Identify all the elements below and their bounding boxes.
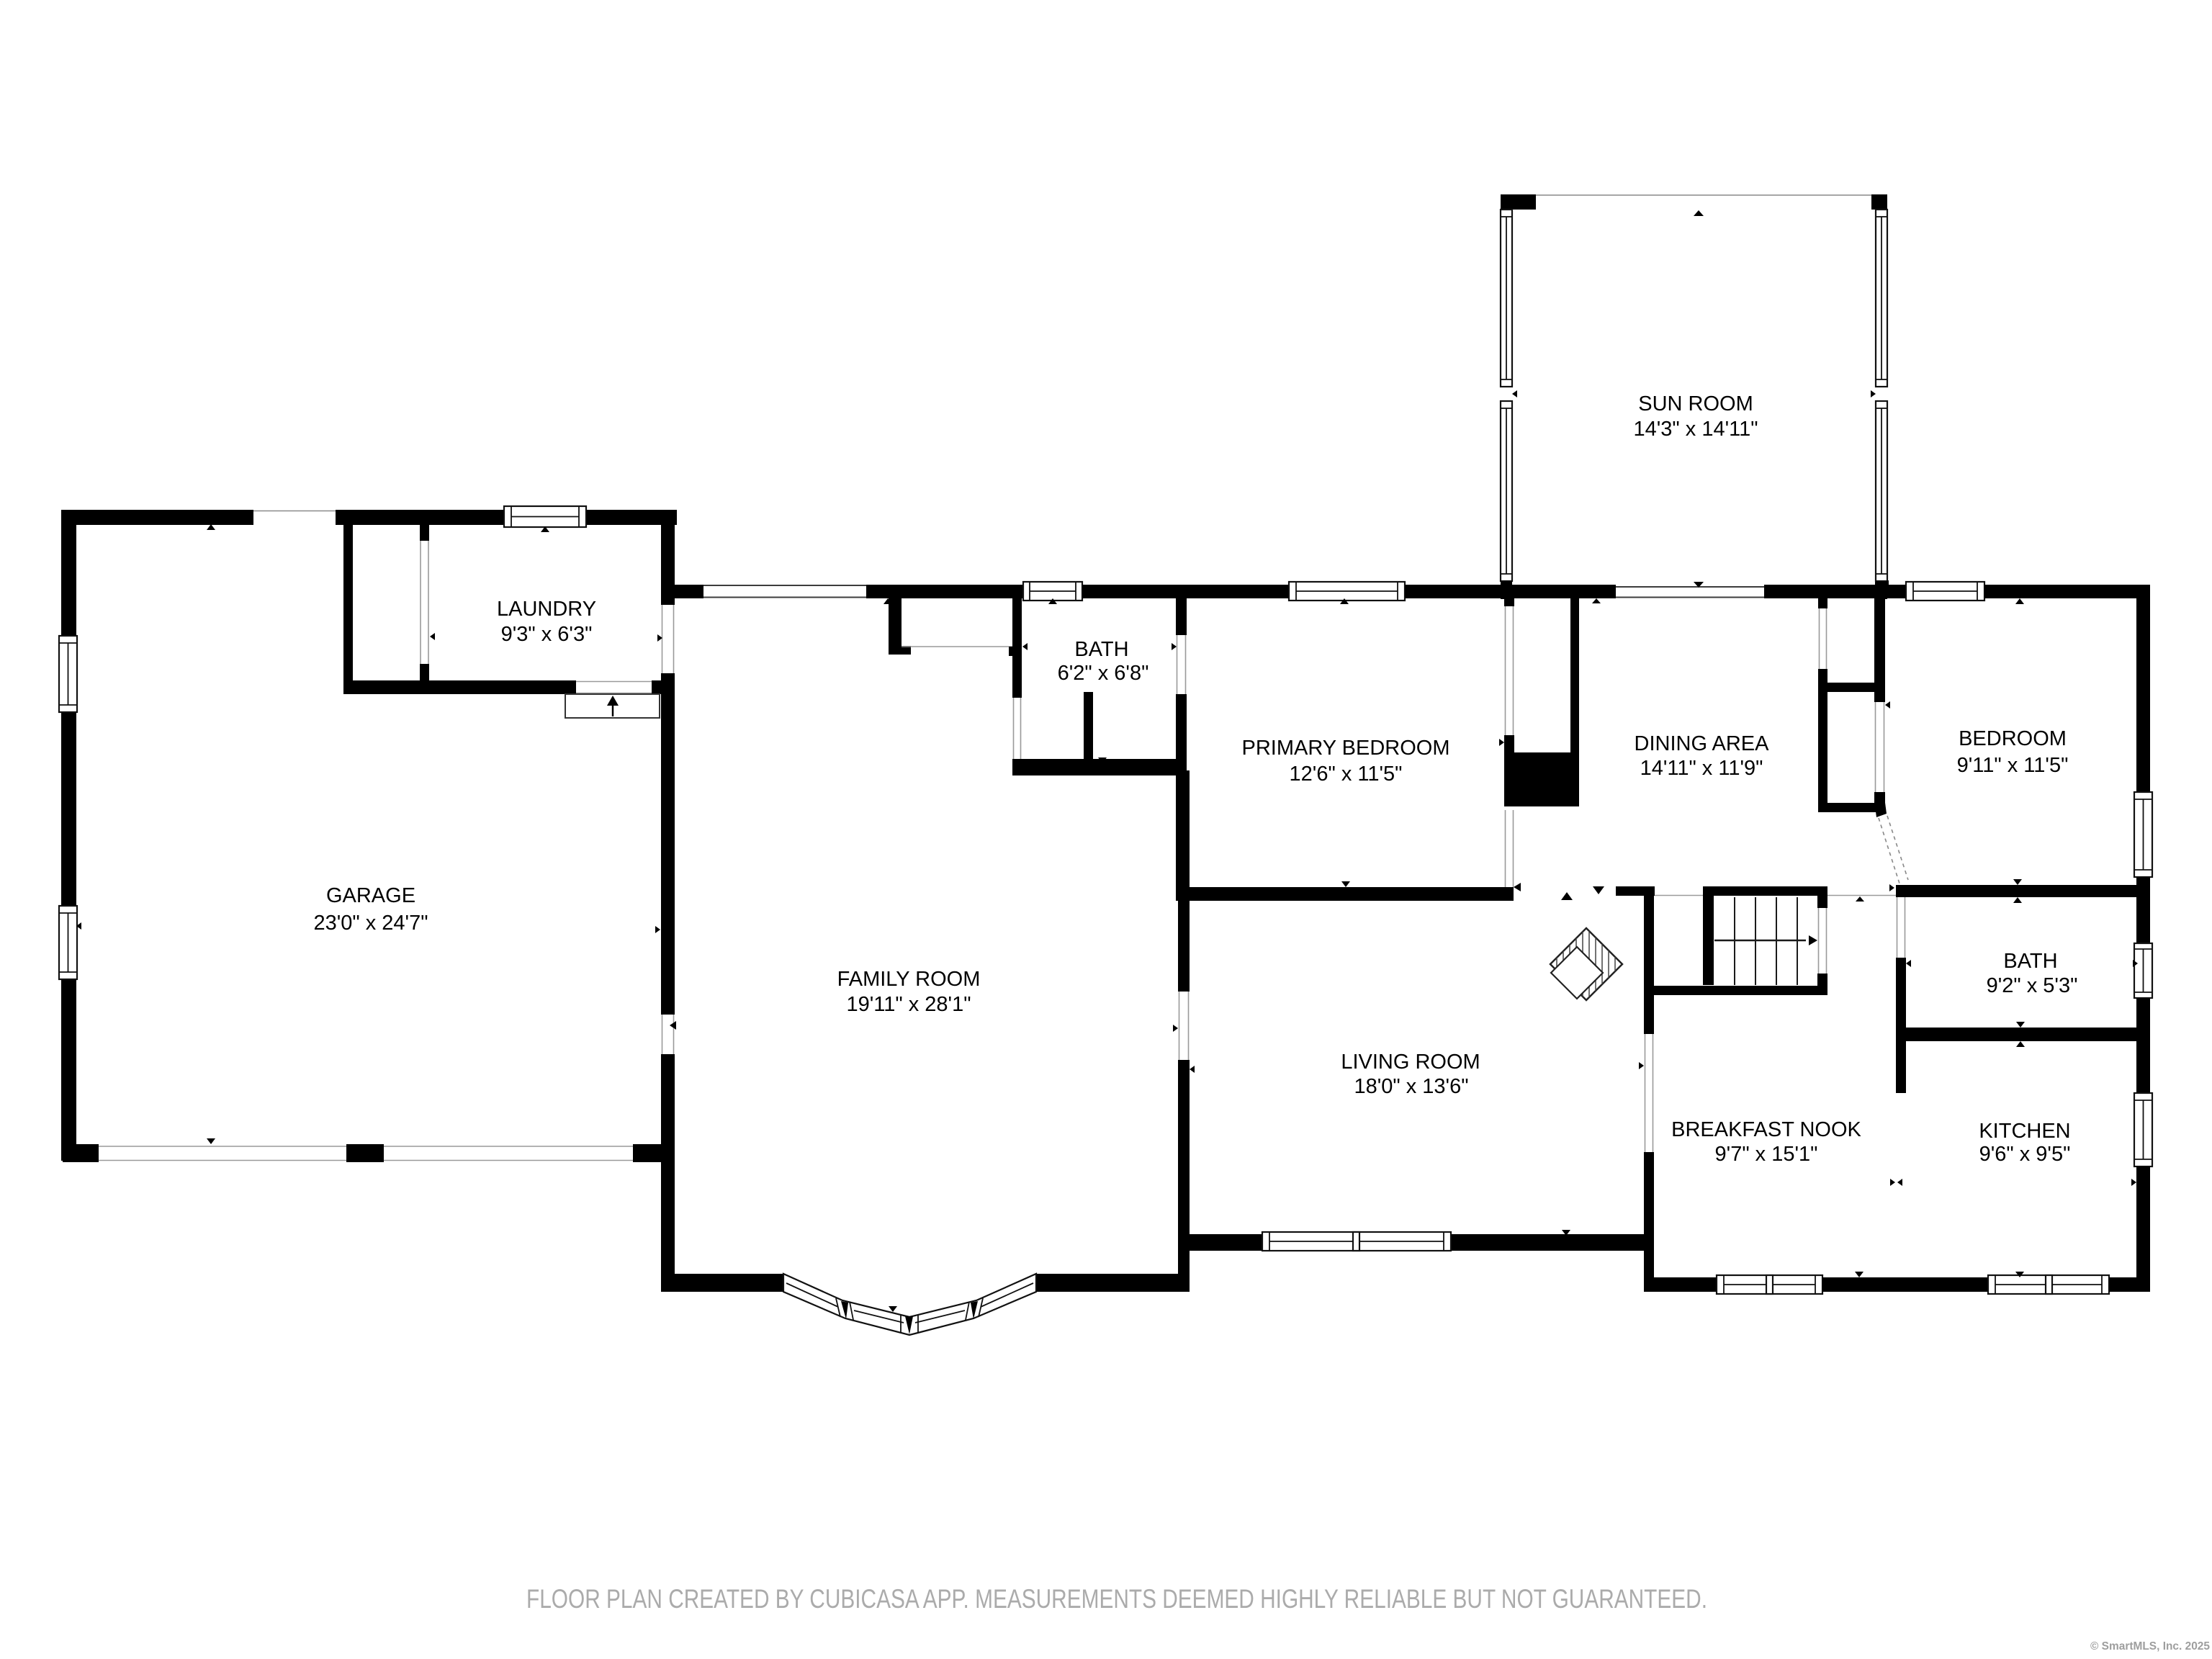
svg-text:FAMILY ROOM: FAMILY ROOM (837, 968, 981, 991)
svg-text:SUN ROOM: SUN ROOM (1638, 392, 1753, 415)
svg-text:© SmartMLS, Inc. 2025: © SmartMLS, Inc. 2025 (2090, 1640, 2210, 1653)
svg-text:BATH: BATH (1074, 638, 1128, 661)
svg-text:LAUNDRY: LAUNDRY (497, 598, 596, 621)
svg-text:9'6" x 9'5": 9'6" x 9'5" (1979, 1143, 2071, 1166)
svg-text:6'2" x 6'8": 6'2" x 6'8" (1058, 662, 1149, 685)
svg-text:BREAKFAST NOOK: BREAKFAST NOOK (1671, 1118, 1861, 1141)
svg-text:PRIMARY BEDROOM: PRIMARY BEDROOM (1242, 737, 1450, 760)
svg-text:BATH: BATH (2003, 950, 2057, 973)
svg-text:KITCHEN: KITCHEN (1979, 1120, 2070, 1143)
svg-text:LIVING ROOM: LIVING ROOM (1341, 1051, 1480, 1074)
svg-text:12'6" x 11'5": 12'6" x 11'5" (1290, 763, 1403, 786)
svg-text:9'3" x 6'3": 9'3" x 6'3" (501, 623, 593, 646)
svg-text:14'3" x 14'11": 14'3" x 14'11" (1633, 418, 1758, 441)
svg-text:23'0" x 24'7": 23'0" x 24'7" (313, 912, 428, 935)
svg-text:DINING AREA: DINING AREA (1635, 732, 1770, 755)
svg-text:BEDROOM: BEDROOM (1959, 727, 2067, 750)
svg-text:9'11" x 11'5": 9'11" x 11'5" (1957, 754, 2069, 777)
svg-text:FLOOR PLAN CREATED BY CUBICASA: FLOOR PLAN CREATED BY CUBICASA APP. MEAS… (526, 1584, 1707, 1614)
svg-text:18'0" x 13'6": 18'0" x 13'6" (1354, 1075, 1468, 1098)
svg-text:19'11" x 28'1": 19'11" x 28'1" (846, 993, 971, 1016)
svg-text:9'7" x 15'1": 9'7" x 15'1" (1715, 1143, 1818, 1166)
svg-text:14'11" x 11'9": 14'11" x 11'9" (1640, 757, 1763, 780)
svg-text:GARAGE: GARAGE (326, 884, 415, 907)
svg-text:9'2" x 5'3": 9'2" x 5'3" (1987, 974, 2078, 997)
